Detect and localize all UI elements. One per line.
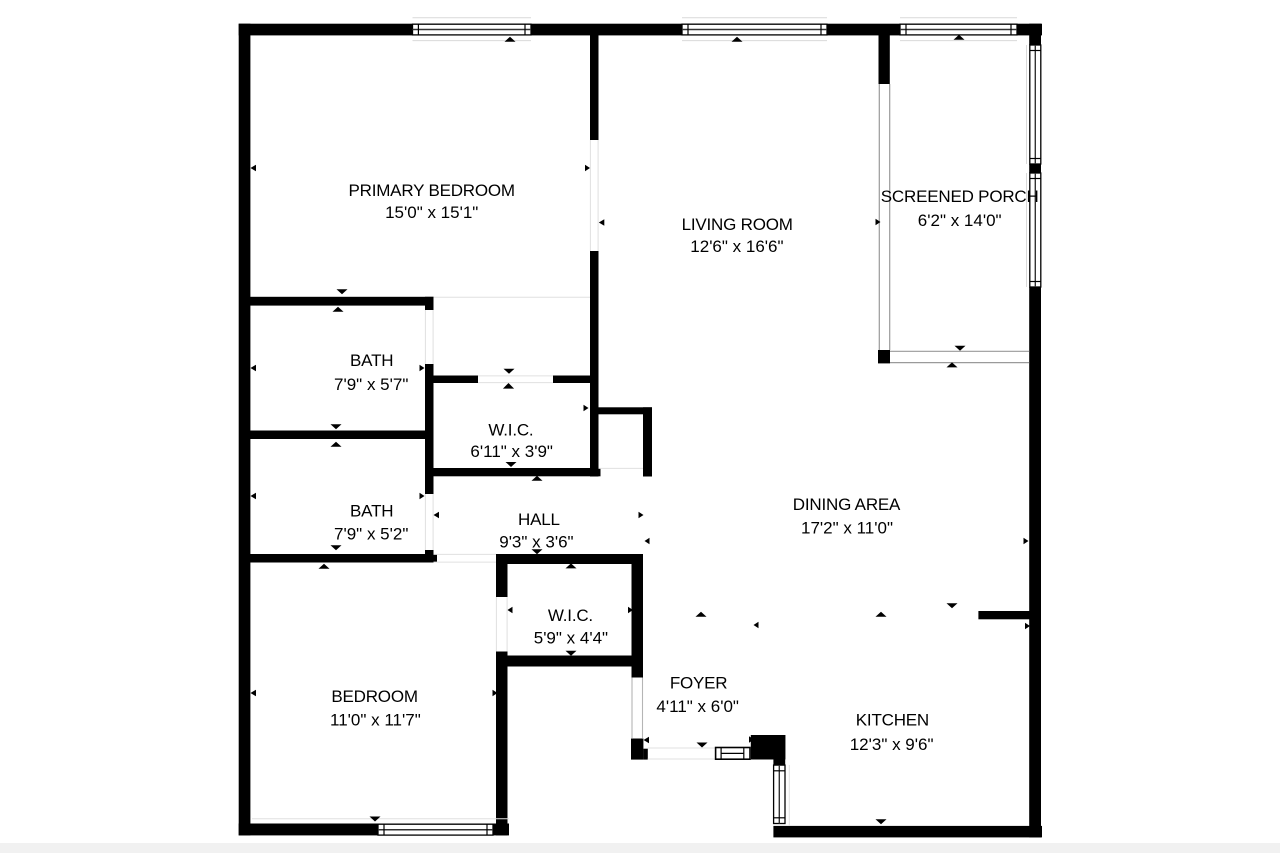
- svg-text:6'2" x 14'0": 6'2" x 14'0": [918, 211, 1002, 230]
- svg-text:SCREENED PORCH: SCREENED PORCH: [881, 187, 1039, 206]
- svg-text:PRIMARY BEDROOM: PRIMARY BEDROOM: [348, 181, 514, 200]
- svg-text:FOYER: FOYER: [670, 674, 728, 693]
- svg-text:BATH: BATH: [350, 351, 393, 370]
- svg-text:11'0" x 11'7": 11'0" x 11'7": [330, 711, 421, 730]
- svg-text:9'3" x 3'6": 9'3" x 3'6": [499, 533, 573, 552]
- svg-text:LIVING ROOM: LIVING ROOM: [682, 215, 793, 234]
- svg-text:6'11" x 3'9": 6'11" x 3'9": [470, 442, 553, 461]
- svg-text:BATH: BATH: [350, 502, 393, 521]
- svg-text:7'9" x 5'7": 7'9" x 5'7": [334, 375, 408, 394]
- svg-text:5'9" x 4'4": 5'9" x 4'4": [534, 629, 608, 648]
- svg-text:W.I.C.: W.I.C.: [548, 606, 593, 625]
- svg-text:BEDROOM: BEDROOM: [331, 687, 417, 706]
- svg-text:4'11" x 6'0": 4'11" x 6'0": [656, 697, 739, 716]
- svg-text:7'9" x 5'2": 7'9" x 5'2": [334, 525, 408, 544]
- svg-text:17'2" x 11'0": 17'2" x 11'0": [801, 518, 893, 537]
- svg-text:12'6" x 16'6": 12'6" x 16'6": [690, 237, 783, 256]
- svg-text:DINING AREA: DINING AREA: [793, 495, 901, 514]
- svg-text:12'3" x 9'6": 12'3" x 9'6": [850, 735, 934, 754]
- svg-text:W.I.C.: W.I.C.: [488, 421, 533, 440]
- svg-text:HALL: HALL: [518, 510, 560, 529]
- svg-text:15'0" x 15'1": 15'0" x 15'1": [385, 203, 478, 222]
- svg-text:KITCHEN: KITCHEN: [856, 710, 929, 729]
